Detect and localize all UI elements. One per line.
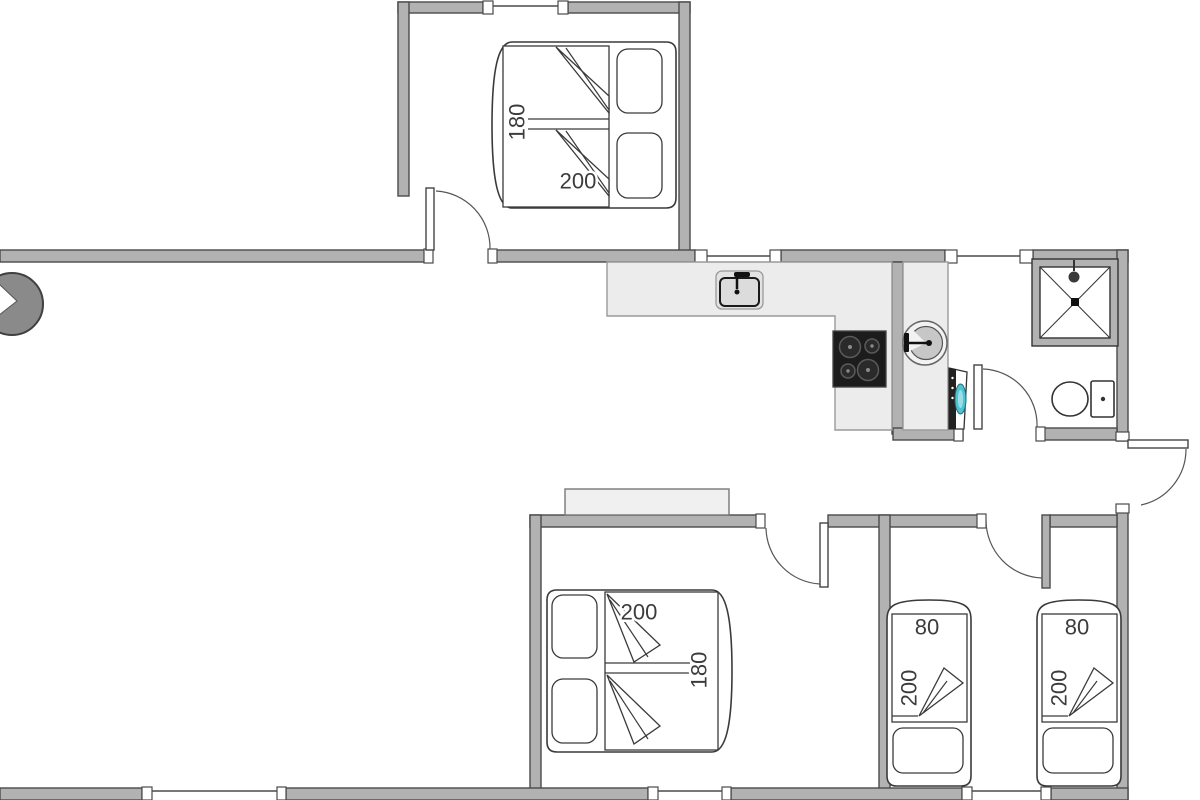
window-top-bedroom <box>483 1 568 14</box>
bed-width-label: 180 <box>505 104 530 141</box>
pillow <box>617 133 662 198</box>
window-kitchen <box>695 250 781 263</box>
shower <box>1032 259 1118 346</box>
bed-width-label: 80 <box>1065 615 1089 640</box>
floor-plan-drawing: 180 200 200 180 80 200 <box>0 0 1200 800</box>
window-right-bedroom <box>962 787 1051 800</box>
floor-plan: 180 200 200 180 80 200 <box>0 0 1200 800</box>
bed-length-label: 200 <box>621 600 658 625</box>
door-entrance <box>1116 432 1188 513</box>
washing-machine <box>949 368 967 429</box>
pillow <box>552 679 597 743</box>
bed-width-label: 80 <box>915 615 939 640</box>
bed-length-label: 200 <box>897 670 922 707</box>
double-bed-top: 180 200 <box>492 42 676 208</box>
door-right-bedroom <box>977 514 1042 578</box>
window-middle-bedroom <box>648 787 731 800</box>
single-bed-2: 80 200 <box>1037 600 1121 786</box>
bed-width-label: 180 <box>687 652 712 689</box>
pillow <box>552 595 597 658</box>
wardrobe <box>565 489 729 515</box>
window-living-room <box>142 787 286 800</box>
bed-length-label: 200 <box>560 169 597 194</box>
pillow <box>617 49 662 113</box>
bed-length-label: 200 <box>1047 670 1072 707</box>
toilet <box>1052 381 1114 417</box>
wood-stove <box>0 273 43 335</box>
door-top-bedroom <box>424 188 497 263</box>
pillow <box>893 728 963 773</box>
pillow <box>1043 728 1113 773</box>
cooktop <box>833 331 886 387</box>
window-bathroom <box>945 250 1033 263</box>
double-bed-middle: 200 180 <box>547 590 732 752</box>
single-bed-1: 80 200 <box>887 600 971 786</box>
door-bathroom <box>954 365 1045 441</box>
kitchen-sink <box>716 271 763 309</box>
door-middle-bedroom <box>756 514 828 587</box>
washbasin <box>903 321 947 365</box>
